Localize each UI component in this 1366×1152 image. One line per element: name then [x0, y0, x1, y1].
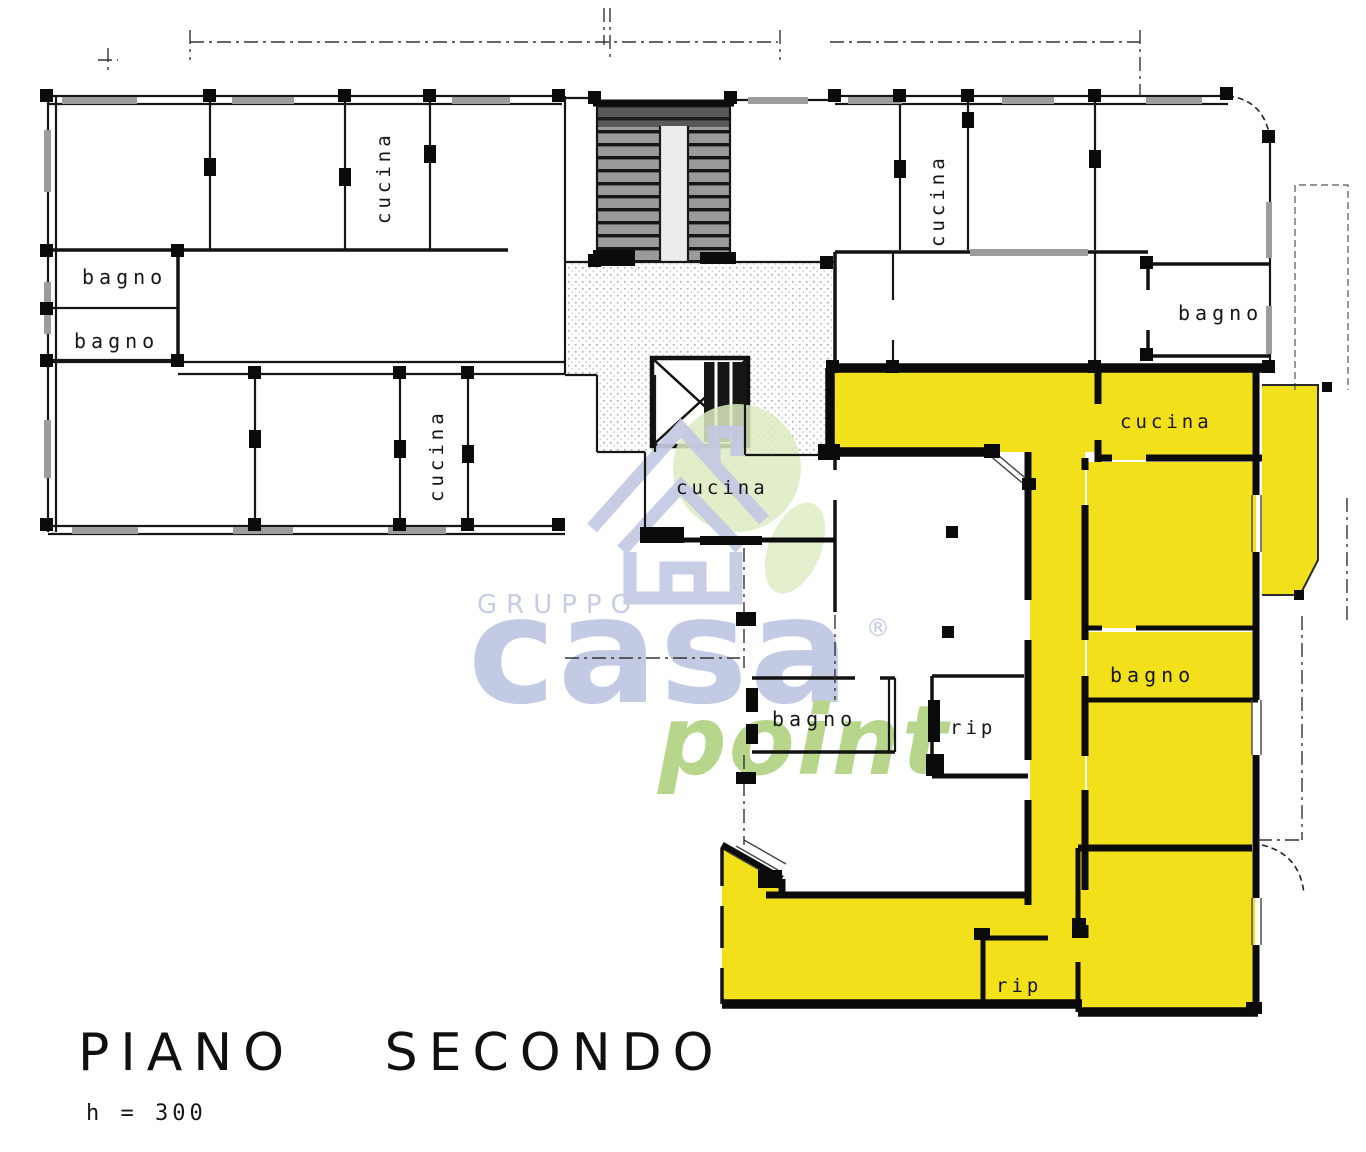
watermark-green-circle: [673, 404, 801, 532]
highlight-corridor: [1030, 452, 1085, 907]
room-label-bagno-left-lower: bagno: [74, 329, 159, 353]
room-label-bagno-bottom-center: bagno: [772, 707, 857, 731]
watermark-point-text: point: [657, 685, 951, 797]
room-label-rip-bottom: rip: [996, 975, 1042, 997]
plan-height-note: h = 300: [86, 1101, 207, 1126]
room-label-rip-center: rip: [950, 717, 996, 739]
balcony-dashed-rect: [1295, 185, 1348, 390]
highlight-terrace: [722, 845, 782, 1004]
room-label-cucina-center: cucina: [676, 477, 769, 499]
highlight-bedroom-3: [1080, 850, 1255, 1010]
highlight-bedroom-2: [1087, 702, 1252, 848]
corner-arc-bottom-right: [1262, 845, 1304, 894]
room-label-bagno-top-right: bagno: [1178, 301, 1263, 325]
watermark-logo: GRUPPO casa ® point: [468, 404, 951, 797]
room-label-cucina-top-left: cucina: [373, 131, 395, 224]
highlight-entrance-hall: [833, 372, 1098, 452]
registered-trademark-icon: ®: [866, 614, 890, 642]
room-label-cucina-highlight: cucina: [1120, 411, 1213, 433]
room-label-bagno-highlight: bagno: [1110, 663, 1195, 687]
staircase: [597, 103, 730, 262]
scanned-floor-plan-page: GRUPPO casa ® point: [0, 0, 1366, 1152]
highlight-bedroom-1: [1087, 462, 1256, 628]
highlight-balcony: [1262, 385, 1318, 595]
room-label-cucina-left-lower: cucina: [426, 409, 448, 502]
floor-plan-drawing: GRUPPO casa ® point: [0, 0, 1366, 1152]
plan-title: PIANO SECONDO: [78, 1023, 725, 1083]
room-label-bagno-left-upper: bagno: [82, 265, 167, 289]
room-label-cucina-top-right: cucina: [927, 154, 949, 247]
